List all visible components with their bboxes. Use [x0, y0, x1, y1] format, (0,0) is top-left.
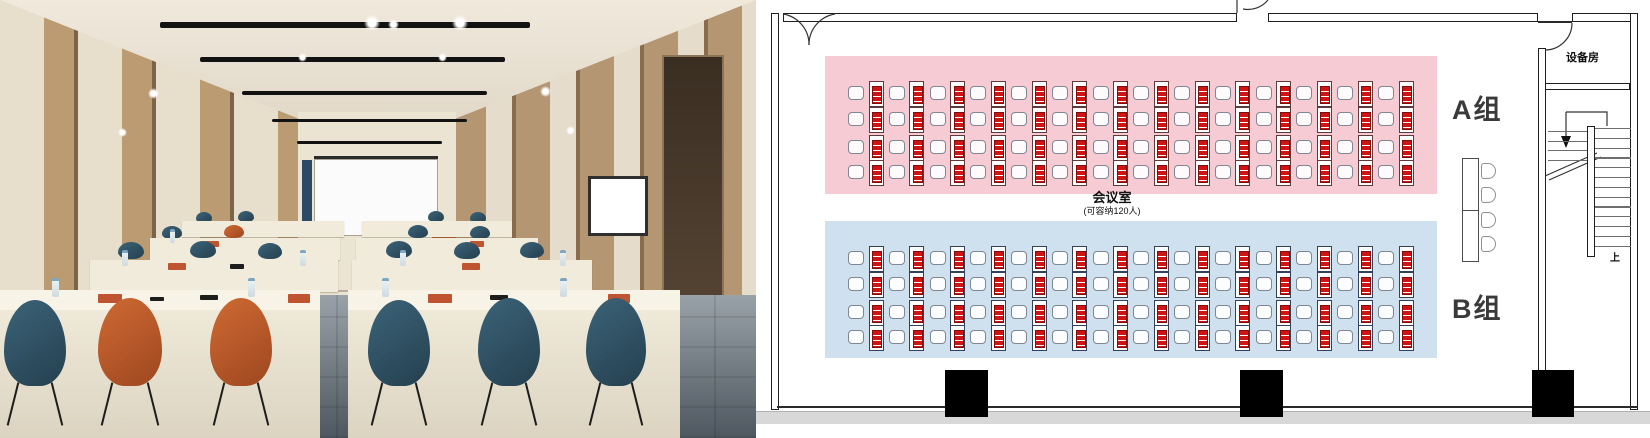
chair-leg [371, 382, 384, 425]
chair-icon [1215, 112, 1231, 126]
red-notebook-icon [1239, 165, 1249, 183]
light-sparkle [438, 53, 447, 62]
red-notebook-icon [1239, 140, 1249, 158]
water-bottle [52, 278, 59, 297]
conference-table [150, 238, 340, 260]
zone-b-label: B组 [1452, 287, 1503, 326]
chair-icon [1052, 140, 1068, 154]
chair-icon [1133, 305, 1149, 319]
stair-tread [1595, 216, 1631, 217]
screenshot-stage: A组 B组 会议室 (可容纳120人) 设备房 上 [0, 0, 1650, 438]
front-chair [210, 298, 272, 430]
chair-icon [930, 330, 946, 344]
head-table [1462, 210, 1479, 262]
chair-icon [970, 140, 986, 154]
light-sparkle [452, 15, 468, 31]
chair-icon [970, 305, 986, 319]
chair-icon [1174, 277, 1190, 291]
chair-icon [930, 140, 946, 154]
stair-tread [1595, 197, 1631, 198]
red-notebook-icon [1117, 165, 1127, 183]
red-notebook-icon [1035, 86, 1045, 104]
orange-folder [462, 263, 480, 270]
red-notebook-icon [994, 140, 1004, 158]
chair-icon [1378, 165, 1394, 179]
chair-icon [1052, 86, 1068, 100]
front-chair [586, 298, 646, 430]
chair-icon [1215, 140, 1231, 154]
red-notebook-icon [1402, 305, 1412, 323]
red-notebook-icon [1402, 330, 1412, 348]
chair-icon [970, 112, 986, 126]
red-notebook-icon [994, 305, 1004, 323]
chair-icon [889, 251, 905, 265]
chair-back [408, 225, 428, 238]
stair-tread [1595, 138, 1631, 139]
chair-icon [1337, 305, 1353, 319]
room-photo [0, 0, 756, 438]
chair-icon [1337, 330, 1353, 344]
chair-icon [1011, 251, 1027, 265]
red-notebook-icon [1157, 251, 1167, 269]
stair-tread [1595, 246, 1631, 247]
ceiling-light-bar [242, 91, 487, 95]
stair-stringer [1587, 126, 1595, 257]
chair-icon [1378, 251, 1394, 265]
room-label-block: 会议室 (可容纳120人) [1032, 191, 1192, 216]
chair-back [454, 242, 480, 259]
water-bottle [560, 250, 566, 266]
chair-icon [930, 165, 946, 179]
chair-icon [1052, 112, 1068, 126]
chair-icon [1215, 86, 1231, 100]
red-notebook-icon [954, 112, 964, 130]
chair-icon [1481, 236, 1496, 252]
stair-tread [1548, 141, 1587, 142]
chair-icon [1215, 251, 1231, 265]
chair-back [98, 298, 162, 386]
red-notebook-icon [1035, 251, 1045, 269]
red-notebook-icon [1035, 305, 1045, 323]
notepad [230, 264, 244, 269]
red-notebook-icon [1402, 86, 1412, 104]
red-notebook-icon [1076, 165, 1086, 183]
chair-back [386, 241, 412, 258]
zone-b-seating [825, 221, 1437, 358]
light-sparkle [298, 53, 307, 62]
chair-back [520, 242, 544, 258]
red-notebook-icon [1402, 165, 1412, 183]
red-notebook-icon [1157, 112, 1167, 130]
red-notebook-icon [1361, 305, 1371, 323]
chair-leg [481, 382, 494, 425]
red-notebook-icon [872, 277, 882, 295]
chair-icon [1481, 212, 1496, 228]
chair-icon [1215, 277, 1231, 291]
chair-icon [1174, 251, 1190, 265]
chair-icon [1256, 330, 1272, 344]
chair-icon [1378, 140, 1394, 154]
red-notebook-icon [872, 165, 882, 183]
red-notebook-icon [1239, 112, 1249, 130]
stair-tread [1595, 226, 1631, 227]
chair-icon [889, 165, 905, 179]
chair-icon [1174, 305, 1190, 319]
stair-tread [1595, 157, 1631, 158]
chair-icon [1378, 305, 1394, 319]
red-notebook-icon [1320, 112, 1330, 130]
red-notebook-icon [1361, 140, 1371, 158]
red-notebook-icon [872, 140, 882, 158]
chair-icon [1052, 330, 1068, 344]
stair-tread [1595, 128, 1631, 129]
ceiling-light-bar [297, 141, 442, 144]
ceiling-light-bar [272, 119, 467, 122]
ceiling-light-bar [200, 57, 505, 62]
red-notebook-icon [954, 305, 964, 323]
red-notebook-icon [1157, 165, 1167, 183]
wall-picture-frame [588, 176, 648, 236]
red-notebook-icon [1361, 165, 1371, 183]
red-notebook-icon [1361, 330, 1371, 348]
red-notebook-icon [1076, 86, 1086, 104]
red-notebook-icon [1280, 277, 1290, 295]
chair-icon [848, 112, 864, 126]
chair-icon [1215, 330, 1231, 344]
red-notebook-icon [1280, 330, 1290, 348]
chair-icon [1296, 140, 1312, 154]
red-notebook-icon [1035, 330, 1045, 348]
red-notebook-icon [954, 277, 964, 295]
chair-icon [1011, 330, 1027, 344]
red-notebook-icon [1361, 86, 1371, 104]
chair-leg [7, 382, 20, 425]
pillar [1240, 370, 1283, 417]
pillar [1532, 370, 1574, 417]
chair-icon [1133, 140, 1149, 154]
chair-icon [930, 86, 946, 100]
red-notebook-icon [1117, 330, 1127, 348]
chair-icon [930, 277, 946, 291]
red-notebook-icon [1035, 165, 1045, 183]
red-notebook-icon [1198, 330, 1208, 348]
red-notebook-icon [1361, 277, 1371, 295]
equipment-room-label: 设备房 [1566, 49, 1599, 65]
red-notebook-icon [1320, 305, 1330, 323]
stair-tread [1548, 160, 1587, 161]
chair-icon [970, 330, 986, 344]
chair-icon [1256, 112, 1272, 126]
chair-icon [1296, 330, 1312, 344]
red-notebook-icon [994, 330, 1004, 348]
chair-leg [101, 382, 114, 425]
chair-icon [1011, 112, 1027, 126]
chair-icon [1052, 277, 1068, 291]
chair-icon [1337, 277, 1353, 291]
light-sparkle [118, 128, 127, 137]
stair-tread [1595, 187, 1631, 188]
chair-icon [1256, 86, 1272, 100]
red-notebook-icon [913, 112, 923, 130]
pillar [945, 370, 988, 417]
chair-icon [1296, 165, 1312, 179]
red-notebook-icon [1320, 86, 1330, 104]
red-notebook-icon [1076, 305, 1086, 323]
chair-icon [1215, 305, 1231, 319]
chair-icon [1256, 165, 1272, 179]
red-notebook-icon [1402, 140, 1412, 158]
red-notebook-icon [1320, 277, 1330, 295]
chair-icon [970, 165, 986, 179]
stair-tread [1595, 167, 1631, 168]
chair-icon [1378, 277, 1394, 291]
front-chair [4, 300, 66, 430]
red-notebook-icon [872, 86, 882, 104]
water-bottle [382, 278, 389, 297]
chair-icon [930, 112, 946, 126]
red-notebook-icon [954, 86, 964, 104]
chair-icon [1093, 140, 1109, 154]
red-notebook-icon [1035, 140, 1045, 158]
zone-a-label: A组 [1452, 88, 1503, 127]
water-bottle [560, 278, 567, 297]
chair-icon [1174, 165, 1190, 179]
chair-icon [848, 165, 864, 179]
water-bottle [170, 229, 175, 243]
red-notebook-icon [1076, 251, 1086, 269]
light-sparkle [388, 19, 399, 30]
room-label: 会议室 [1032, 191, 1192, 206]
chair-back [586, 298, 646, 386]
red-notebook-icon [1198, 305, 1208, 323]
chair-icon [970, 86, 986, 100]
red-notebook-icon [1198, 277, 1208, 295]
chair-icon [1481, 187, 1496, 203]
red-notebook-icon [1280, 165, 1290, 183]
orange-folder [168, 263, 186, 270]
chair-icon [848, 330, 864, 344]
chair-icon [1215, 165, 1231, 179]
red-notebook-icon [913, 140, 923, 158]
red-notebook-icon [1280, 112, 1290, 130]
red-notebook-icon [1280, 140, 1290, 158]
red-notebook-icon [1198, 86, 1208, 104]
chair-back [4, 300, 66, 386]
water-bottle [300, 250, 306, 266]
chair-icon [889, 277, 905, 291]
chair-icon [1296, 305, 1312, 319]
red-notebook-icon [1117, 140, 1127, 158]
chair-icon [1174, 140, 1190, 154]
red-notebook-icon [872, 305, 882, 323]
red-notebook-icon [872, 112, 882, 130]
red-notebook-icon [994, 251, 1004, 269]
red-notebook-icon [1117, 112, 1127, 130]
red-notebook-icon [1239, 305, 1249, 323]
red-notebook-icon [1361, 112, 1371, 130]
stair-treads [1595, 128, 1631, 258]
chair-icon [1378, 330, 1394, 344]
chair-icon [930, 251, 946, 265]
water-bottle [122, 250, 128, 266]
red-notebook-icon [1198, 112, 1208, 130]
stair-treads [1548, 131, 1587, 173]
chair-icon [1011, 86, 1027, 100]
red-notebook-icon [1035, 277, 1045, 295]
chair-icon [1337, 112, 1353, 126]
chair-icon [1337, 165, 1353, 179]
chair-icon [848, 277, 864, 291]
chair-icon [889, 140, 905, 154]
chair-leg [213, 382, 226, 425]
chair-icon [1133, 251, 1149, 265]
chair-icon [848, 140, 864, 154]
chair-icon [1093, 305, 1109, 319]
red-notebook-icon [1157, 305, 1167, 323]
chair-icon [1296, 251, 1312, 265]
chair-icon [1011, 140, 1027, 154]
red-notebook-icon [1198, 140, 1208, 158]
chair-icon [1011, 277, 1027, 291]
chair-icon [1174, 112, 1190, 126]
red-notebook-icon [1157, 277, 1167, 295]
red-notebook-icon [1076, 330, 1086, 348]
chair-icon [1093, 277, 1109, 291]
red-notebook-icon [913, 330, 923, 348]
red-notebook-icon [1117, 277, 1127, 295]
chair-icon [1052, 305, 1068, 319]
chair-leg [147, 382, 160, 425]
chair-icon [970, 277, 986, 291]
stair-tread [1595, 177, 1631, 178]
chair-icon [1296, 112, 1312, 126]
chair-icon [889, 305, 905, 319]
chair-icon [1256, 277, 1272, 291]
chair-icon [1093, 86, 1109, 100]
ceiling-light-bar [160, 22, 530, 28]
red-notebook-icon [994, 277, 1004, 295]
chair-icon [1011, 305, 1027, 319]
red-notebook-icon [1280, 86, 1290, 104]
chair-icon [1133, 165, 1149, 179]
chair-icon [1052, 251, 1068, 265]
red-notebook-icon [1239, 86, 1249, 104]
chair-icon [1133, 277, 1149, 291]
red-notebook-icon [1076, 112, 1086, 130]
water-bottle [400, 250, 406, 266]
chair-icon [1296, 277, 1312, 291]
chair-icon [1296, 86, 1312, 100]
stair-tread [1595, 236, 1631, 237]
red-notebook-icon [954, 330, 964, 348]
chair-icon [1093, 165, 1109, 179]
red-notebook-icon [1117, 251, 1127, 269]
stair-tread [1595, 148, 1631, 149]
chair-icon [1256, 140, 1272, 154]
chair-icon [848, 305, 864, 319]
light-sparkle [364, 15, 380, 31]
chair-icon [1174, 330, 1190, 344]
chair-icon [1093, 251, 1109, 265]
chair-icon [1337, 251, 1353, 265]
red-notebook-icon [872, 330, 882, 348]
red-notebook-icon [913, 86, 923, 104]
red-notebook-icon [1239, 277, 1249, 295]
chair-back [210, 298, 272, 386]
head-table [1462, 158, 1479, 211]
red-notebook-icon [913, 165, 923, 183]
red-notebook-icon [954, 140, 964, 158]
chair-leg [589, 382, 602, 425]
red-notebook-icon [954, 251, 964, 269]
chair-icon [848, 86, 864, 100]
conference-table [356, 238, 538, 260]
chair-back [190, 241, 216, 258]
red-notebook-icon [954, 165, 964, 183]
water-bottle [248, 278, 255, 297]
red-notebook-icon [1117, 305, 1127, 323]
zone-a-seating [825, 56, 1437, 194]
chair-icon [1481, 163, 1496, 179]
chair-icon [848, 251, 864, 265]
chair-icon [1133, 112, 1149, 126]
chair-icon [930, 305, 946, 319]
front-chair [478, 298, 540, 430]
chair-leg [631, 382, 644, 425]
chair-icon [1337, 86, 1353, 100]
red-notebook-icon [994, 165, 1004, 183]
red-notebook-icon [872, 251, 882, 269]
red-notebook-icon [1320, 330, 1330, 348]
chair-icon [1256, 305, 1272, 319]
red-notebook-icon [1076, 140, 1086, 158]
chair-icon [1378, 112, 1394, 126]
stair-tread [1548, 150, 1587, 151]
red-notebook-icon [1157, 330, 1167, 348]
orange-folder [428, 294, 452, 303]
stair-tread [1595, 206, 1631, 207]
conference-table [182, 221, 344, 237]
capacity-label: (可容纳120人) [1032, 206, 1192, 216]
red-notebook-icon [1035, 112, 1045, 130]
chair-icon [1337, 140, 1353, 154]
chair-icon [889, 86, 905, 100]
red-notebook-icon [1076, 277, 1086, 295]
chair-icon [1256, 251, 1272, 265]
chair-leg [415, 382, 428, 425]
red-notebook-icon [1239, 251, 1249, 269]
red-notebook-icon [1280, 305, 1290, 323]
red-notebook-icon [994, 86, 1004, 104]
chair-icon [1378, 86, 1394, 100]
chair-icon [1093, 112, 1109, 126]
chair-icon [1011, 165, 1027, 179]
chair-icon [889, 112, 905, 126]
chair-back [478, 298, 540, 386]
stairs-up-label: 上 [1610, 249, 1620, 264]
red-notebook-icon [1361, 251, 1371, 269]
red-notebook-icon [1320, 140, 1330, 158]
chair-icon [1133, 86, 1149, 100]
chair-icon [1174, 86, 1190, 100]
red-notebook-icon [913, 251, 923, 269]
red-notebook-icon [1402, 277, 1412, 295]
front-chair [368, 300, 430, 430]
red-notebook-icon [1280, 251, 1290, 269]
red-notebook-icon [1402, 251, 1412, 269]
chair-leg [257, 382, 270, 425]
chair-icon [970, 251, 986, 265]
